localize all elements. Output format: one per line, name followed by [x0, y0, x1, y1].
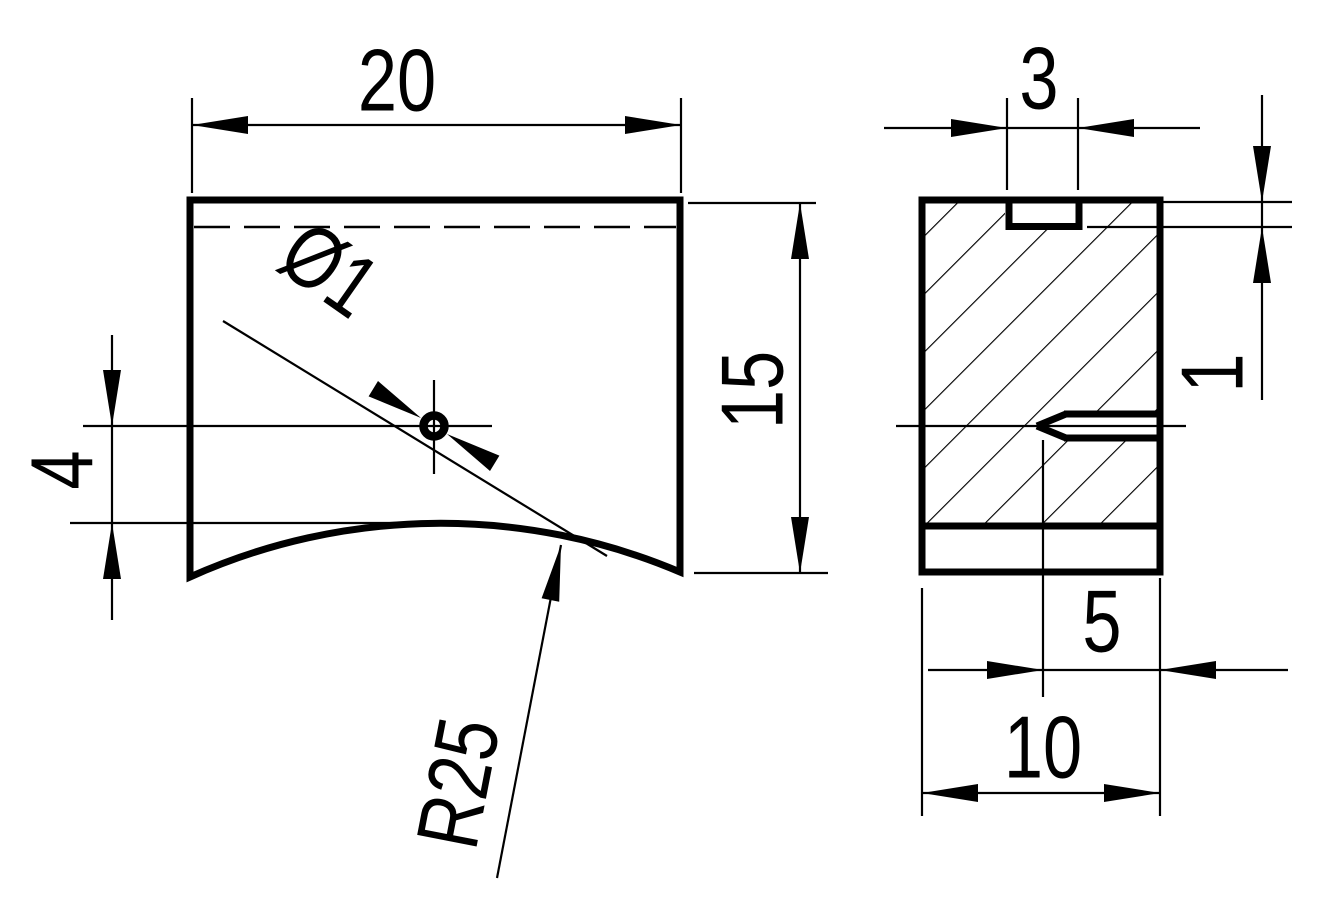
- dim-hole-depth-arrow-left: [987, 661, 1043, 679]
- hole-diameter-arrow-upper: [369, 381, 421, 418]
- dim-view-depth-arrow-left: [922, 784, 978, 802]
- side-section-view: [884, 95, 1292, 816]
- dim-arc-radius-arrow: [542, 545, 561, 602]
- dim-hole-offset-arrow-top: [103, 370, 121, 426]
- dim-hole-diameter-label: Ø1: [263, 202, 396, 336]
- dim-width-arrow-left: [192, 116, 248, 134]
- technical-drawing-canvas: 20 15 4 Ø1 R25 3 1 5 10: [0, 0, 1330, 923]
- dim-width: [192, 98, 681, 193]
- dim-slot-width-arrow-left: [951, 119, 1007, 137]
- dim-view-depth-label: 10: [1004, 698, 1082, 796]
- dim-hole-offset-label: 4: [13, 450, 111, 489]
- engineering-drawing: 20 15 4 Ø1 R25 3 1 5 10: [0, 0, 1330, 923]
- dim-slot-width-arrow-right: [1078, 119, 1134, 137]
- dim-height-arrow-top: [791, 203, 809, 259]
- slot-clear-area: [1005, 203, 1074, 224]
- dim-view-depth-arrow-right: [1104, 784, 1160, 802]
- dim-arc-radius-label: R25: [397, 710, 518, 856]
- dim-height-label: 15: [703, 351, 801, 429]
- dim-width-arrow-right: [625, 116, 681, 134]
- hole-diameter-arrow-lower: [447, 434, 499, 471]
- dim-hole-offset-arrow-bottom: [103, 523, 121, 579]
- dim-width-label: 20: [358, 31, 436, 129]
- dim-slot-depth-label: 1: [1163, 353, 1261, 392]
- dim-hole-depth-arrow-right: [1160, 661, 1216, 679]
- section-hatching: [925, 203, 1157, 523]
- dim-slot-width-label: 3: [1019, 29, 1058, 127]
- dim-height-arrow-bottom: [791, 517, 809, 573]
- dim-slot-depth-arrow-bottom: [1253, 227, 1271, 283]
- dim-slot-depth-arrow-top: [1253, 146, 1271, 202]
- dim-hole-depth-label: 5: [1082, 572, 1121, 670]
- dim-arc-radius: [497, 545, 561, 878]
- dim-hole-offset: [70, 335, 424, 620]
